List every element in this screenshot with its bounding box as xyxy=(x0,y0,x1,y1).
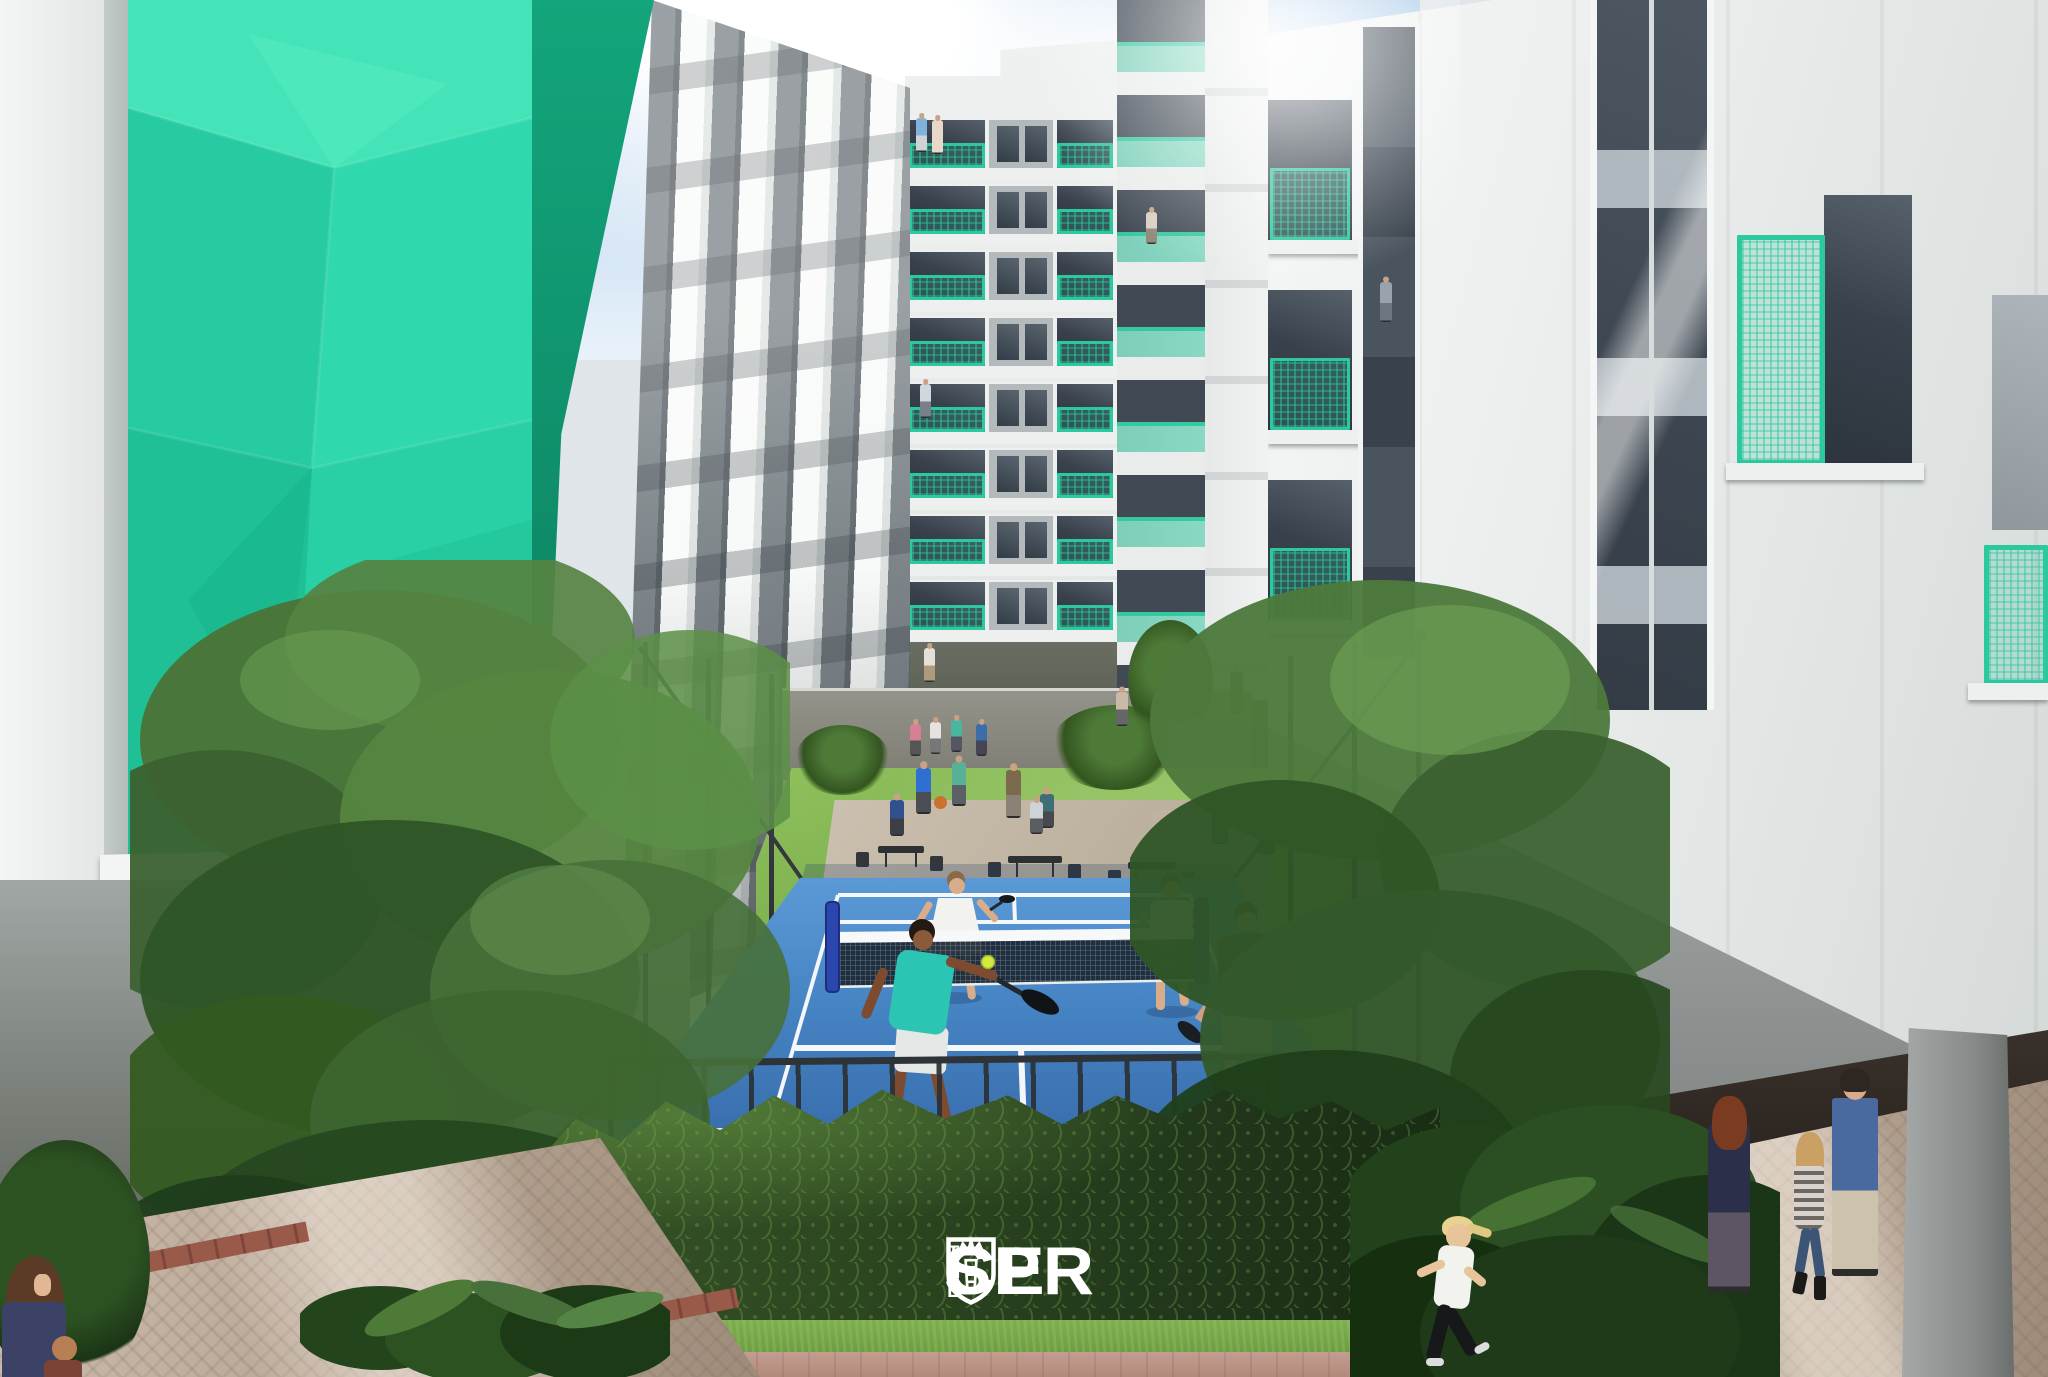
balcony-railing xyxy=(909,209,985,234)
bottom-left-plants xyxy=(300,1238,670,1377)
balcony-glass xyxy=(1824,195,1912,467)
balcony-railing xyxy=(1057,539,1113,564)
balcony-glass xyxy=(909,318,985,366)
balcony-railing xyxy=(1057,275,1113,300)
floor-row xyxy=(905,382,1117,444)
balcony-glass xyxy=(1057,252,1113,300)
balcony-glass xyxy=(1057,450,1113,498)
courtyard-rendering: THE SPR CE xyxy=(0,0,2048,1377)
floor-row xyxy=(905,580,1117,642)
balcony-railing xyxy=(1057,143,1113,168)
pickleball xyxy=(982,956,995,969)
jogger-shoe xyxy=(1426,1358,1444,1366)
family-woman xyxy=(1708,1125,1750,1293)
family-man xyxy=(1832,1098,1878,1276)
window xyxy=(1025,522,1047,558)
window xyxy=(1025,258,1047,294)
window xyxy=(997,126,1019,162)
passage-column xyxy=(1902,1028,2014,1377)
person-seated xyxy=(1030,802,1043,834)
balcony-glass xyxy=(1057,186,1113,234)
jogger xyxy=(1388,1222,1528,1377)
balcony-glass xyxy=(909,516,985,564)
floor-row xyxy=(905,448,1117,510)
girl-leg xyxy=(1809,1228,1826,1279)
spruce-logo: THE SPR CE xyxy=(944,1236,998,1306)
balcony-railing xyxy=(1270,358,1350,430)
girl-boot xyxy=(1792,1271,1808,1295)
window xyxy=(997,324,1019,360)
balcony-railing xyxy=(909,539,985,564)
balcony-slab xyxy=(1268,240,1362,254)
window xyxy=(1025,192,1047,228)
balcony-railing xyxy=(909,473,985,498)
window xyxy=(1992,295,2048,530)
balcony-glass xyxy=(1057,582,1113,630)
balcony-railing xyxy=(909,605,985,630)
window xyxy=(997,522,1019,558)
balcony-person xyxy=(1380,282,1392,322)
balcony-glass xyxy=(909,186,985,234)
balcony-railing xyxy=(1057,341,1113,366)
window xyxy=(1025,588,1047,624)
left-child-body xyxy=(44,1360,82,1377)
family-woman-hair xyxy=(1712,1096,1747,1150)
floor-row xyxy=(905,184,1117,246)
balcony-person xyxy=(924,648,935,682)
balcony-railing xyxy=(1057,605,1113,630)
balcony-glass xyxy=(1057,318,1113,366)
floor-row xyxy=(905,250,1117,312)
balcony-slab xyxy=(1968,683,2048,700)
facade-panel xyxy=(989,384,1053,432)
window xyxy=(997,456,1019,492)
window xyxy=(1025,126,1047,162)
basketball xyxy=(934,796,947,809)
left-woman-face xyxy=(34,1274,51,1296)
facade-panel xyxy=(989,582,1053,630)
left-child-head xyxy=(52,1336,77,1361)
window xyxy=(1025,390,1047,426)
facade-panel xyxy=(989,186,1053,234)
window xyxy=(1025,324,1047,360)
floor-row xyxy=(905,316,1117,378)
person xyxy=(1116,692,1128,726)
balcony-glass xyxy=(1057,384,1113,432)
facade-panel xyxy=(989,252,1053,300)
person-seated xyxy=(890,800,904,836)
balcony-railing xyxy=(1057,407,1113,432)
person xyxy=(930,722,941,754)
balcony-person xyxy=(916,118,927,152)
net-post xyxy=(826,902,839,992)
window xyxy=(997,390,1019,426)
floor-row xyxy=(905,514,1117,576)
facade-panel xyxy=(989,120,1053,168)
girl-dress xyxy=(1794,1166,1824,1230)
balcony-glass xyxy=(909,582,985,630)
person xyxy=(910,724,921,756)
balcony-glass xyxy=(909,252,985,300)
balcony-glass xyxy=(1057,120,1113,168)
person xyxy=(1006,770,1021,818)
planter-palm xyxy=(795,725,890,795)
person xyxy=(976,724,987,756)
window xyxy=(997,588,1019,624)
balcony-glass xyxy=(1057,516,1113,564)
balcony-person xyxy=(1146,212,1157,244)
facade-panel xyxy=(989,450,1053,498)
balcony-railing xyxy=(1737,235,1825,465)
balcony-railing xyxy=(1057,473,1113,498)
facade-panel xyxy=(989,318,1053,366)
balcony-railing xyxy=(909,275,985,300)
balcony-railing xyxy=(909,341,985,366)
person-basketball xyxy=(916,768,931,814)
family-girl xyxy=(1794,1160,1826,1310)
facade-panel xyxy=(989,516,1053,564)
family-man-hair xyxy=(1840,1068,1870,1092)
balcony-railing xyxy=(1057,209,1113,234)
balcony-person xyxy=(920,384,931,418)
window xyxy=(997,258,1019,294)
person xyxy=(952,762,966,806)
person xyxy=(951,720,962,752)
balcony-slab xyxy=(1726,463,1924,480)
window xyxy=(997,192,1019,228)
balcony-person xyxy=(932,120,943,154)
balcony-railing xyxy=(1270,168,1350,240)
logo-ce-text: CE xyxy=(944,1232,1047,1310)
girl-boot xyxy=(1814,1276,1826,1300)
balcony-glass xyxy=(909,450,985,498)
balcony-slab xyxy=(1268,430,1362,444)
balcony-railing xyxy=(1984,545,2048,685)
window xyxy=(1025,456,1047,492)
